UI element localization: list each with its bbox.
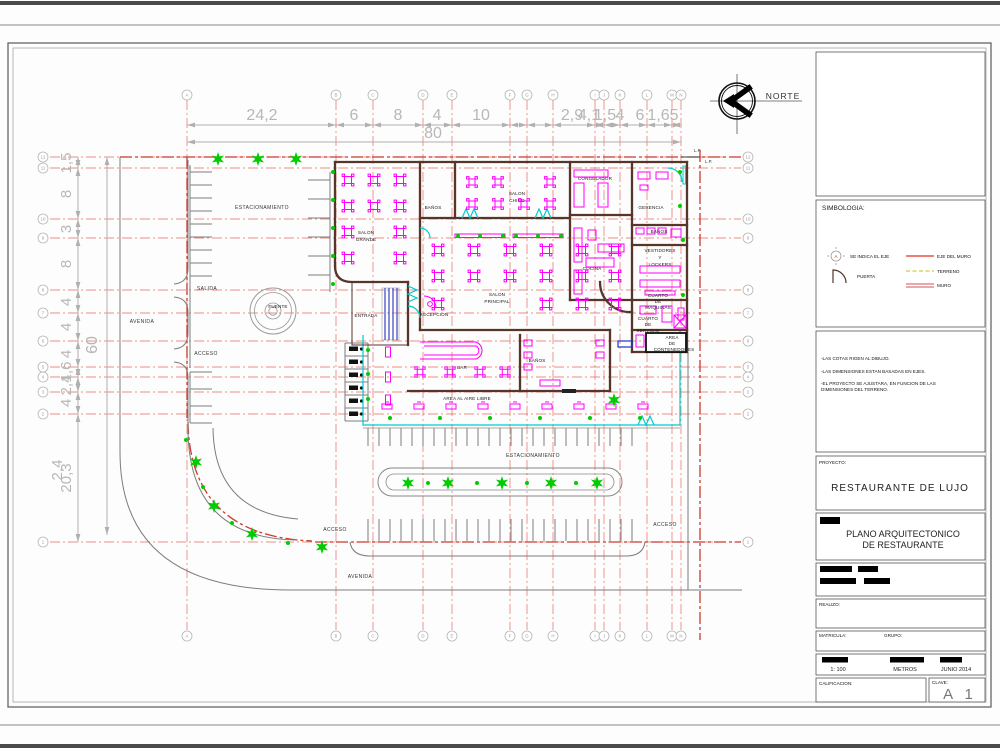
legend-se-indica: SE INDICA EL EJE [850,254,889,259]
lp-label-1: L.P. [694,148,701,153]
unidades-value: METROS [893,667,917,673]
dim-left-8: 2,4 [58,375,75,396]
dim-left-5: 4 [58,323,75,331]
grid-number-right-10: 10 [746,217,751,222]
estacionamiento-top-label: ESTACIONAMIENTO [235,205,289,211]
salon-principal-label-2: PRINCIPAL [484,299,510,304]
grid-letter-bottom-H: H [551,634,554,639]
grid-letter-top-K: K [619,93,622,98]
grid-letter-bottom-B: B [335,634,338,639]
maquinas-label-3: MAQUINAS [645,305,671,310]
salon-chico-label-2: CHICO [509,198,525,203]
dim-top-3: 4 [433,107,442,124]
dim-left-9: 4 [58,399,75,407]
north-label: NORTE [766,91,801,101]
property-lines [120,150,741,640]
proyecto-label: PROYECTO: [819,460,846,465]
banos1-label: BAÑOS [425,204,442,210]
legend-muro: MURO [937,283,951,288]
dim-left-4: 4 [58,298,75,306]
grid-letter-top-M: M [670,93,674,98]
lp-labels: L.P. L.P. [694,148,712,164]
grid-letter-top-C: C [371,93,374,98]
contenedores-label-2: DE [669,341,676,346]
dim-left-0: 1,5 [58,153,75,174]
dim-top-4: 10 [472,107,490,124]
drawing-sheet: AABBCCDDEEFFGGHHIIJJKKLLMMNN121211111010… [0,0,1000,751]
clave-label: CLAVE: [932,680,948,685]
fecha-value: JUNIO 2014 [941,667,971,673]
estacionamiento-bottom-label: ESTACIONAMIENTO [506,453,560,459]
note-3: -EL PROYECTO SE AJUSTARA, EN FUNCION DE … [821,381,936,386]
grid-number-left-10: 10 [41,217,46,222]
redacted-bar [820,517,840,524]
recepcion-label: RECEPCION [420,312,449,317]
dim-left-6: 4 [58,350,75,358]
vestidores-label-3: LOCKERS [648,262,671,267]
grid-number-left-12: 12 [41,155,46,160]
grid-letter-bottom-E: E [451,634,454,639]
grid-number-right-12: 12 [746,155,751,160]
salon-chico-label-1: SALON [509,191,525,196]
dim-top-1: 6 [350,107,359,124]
grid-letter-top-J: J [603,93,605,98]
contenedores-label-3: CONTENEDORES [654,347,695,352]
acceso-bottom-left-label: ACCESO [323,527,347,533]
grid-letter-top-B: B [335,93,338,98]
avenida-left-label: AVENIDA [130,319,155,325]
salon-grande-label-1: SALON [358,230,374,235]
grid-letter-bottom-K: K [619,634,622,639]
dim-left-total: 60 [84,336,101,354]
grupo-label: GRUPO: [884,633,902,638]
grid-letter-bottom-F: F [509,634,512,639]
plano-titulo-2: DE RESTAURANTE [862,540,943,550]
north-arrow: NORTE [710,74,802,134]
grid-letter-top-G: G [525,93,529,98]
grid-letter-bottom-J: J [603,634,605,639]
matricula-label: MATRICULA: [819,633,846,638]
fountain [250,288,296,334]
grid-letter-bottom-I: I [594,634,595,639]
dim-top-0: 24,2 [246,107,277,124]
maquinas-label-2: DE [655,299,662,304]
simbologia-title: SIMBOLOGIA: [822,205,865,212]
gerencia-label: GERENCIA [638,205,664,210]
banos3-label: BAÑOS [529,357,546,363]
dim-top-cluster-5: 1,65 [647,107,678,124]
legend-axis-letter: A [834,254,837,259]
aire-libre-label: AREA AL AIRE LIBRE [443,396,491,401]
escala-value: 1: 100 [830,667,845,673]
grid-letter-top-H: H [551,93,554,98]
grid-letter-bottom-D: D [421,634,424,639]
avenida-bottom-label: AVENIDA [348,574,373,580]
grid-letter-bottom-G: G [525,634,529,639]
servicio-label-1: CUARTO [638,316,658,321]
grid-axes: AABBCCDDEEFFGGHHIIJJKKLLMMNN121211111010… [38,90,753,641]
dim-top-cluster-3: 4 [616,107,625,124]
legend-puerta: PUERTA [857,274,876,279]
dim-top-cluster-2: 1,5 [594,107,616,124]
grid-letter-top-I: I [594,93,595,98]
grid-letter-top-F: F [509,93,512,98]
plano-titulo-1: PLANO ARQUITECTONICO [846,529,960,539]
dim-top-2: 8 [394,107,403,124]
legend-eje-muro: EJE DEL MURO [937,254,971,259]
grid-letter-bottom-M: M [670,634,674,639]
salon-grande-label-2: GRANDE [356,237,377,242]
cocina-label: COCINA [583,266,603,271]
fuente-label: FUENTE [268,304,287,309]
acceso-left-label: ACCESO [194,351,218,357]
contenedores-label-1: AREA [665,335,679,340]
banos2-label: BAÑOS [651,228,668,234]
note-2: -LAS DIMENSIONES ESTAN BASADAS EN EJES. [821,369,926,374]
grid-number-left-11: 11 [41,166,46,171]
dim-left-1: 8 [58,190,75,198]
grid-letter-bottom-N: N [679,634,682,639]
salon-principal-label-1: SALON [489,292,505,297]
grid-letter-top-A: A [186,93,189,98]
entrada-label: ENTRADA [354,313,378,318]
grid-letter-top-N: N [679,93,682,98]
clave-value: A 1 [943,686,977,703]
congelador-label: CONGELADOR [578,176,613,181]
dim-left-3: 8 [58,260,75,268]
grid-letter-bottom-C: C [371,634,374,639]
calificacion-label: CALIFICACION: [819,681,852,686]
note-1: -LAS COTAS RIGEN AL DIBUJO. [821,356,890,361]
grid-letter-bottom-A: A [186,634,189,639]
dim-left-extra: 2,4 [49,460,66,481]
vestidores-label-2: Y [658,255,661,260]
maquinas-label-1: CUARTO [648,293,668,298]
dim-top-cluster-4: 6 [636,107,645,124]
legend-terreno: TERRENO [937,269,960,274]
dim-top-total: 80 [424,125,442,142]
proyecto-nombre: RESTAURANTE DE LUJO [831,483,969,494]
acceso-bottom-right-label: ACCESO [653,522,677,528]
note-4: DIMENSIONES DEL TERRENO. [821,387,888,392]
grid-letter-top-D: D [421,93,424,98]
building-walls [335,162,687,393]
titleblock-logo-box [816,52,985,196]
grid-letter-top-E: E [451,93,454,98]
salida-label: SALIDA [197,286,217,292]
servicio-label-2: DE [645,322,652,327]
vestidores-label-1: VESTIDORES [644,248,675,253]
servicio-label-3: SERVICIO [636,328,659,333]
dim-left-2: 3 [58,225,75,233]
grid-number-right-11: 11 [746,166,751,171]
lp-label-2: L.P. [705,159,712,164]
title-block: SIMBOLOGIA: A SE INDICA EL EJE PUERTA EJ… [816,52,985,703]
bar-label: BAR [457,365,467,370]
streets [120,157,742,590]
realizo-label: REALIZO: [819,602,840,607]
